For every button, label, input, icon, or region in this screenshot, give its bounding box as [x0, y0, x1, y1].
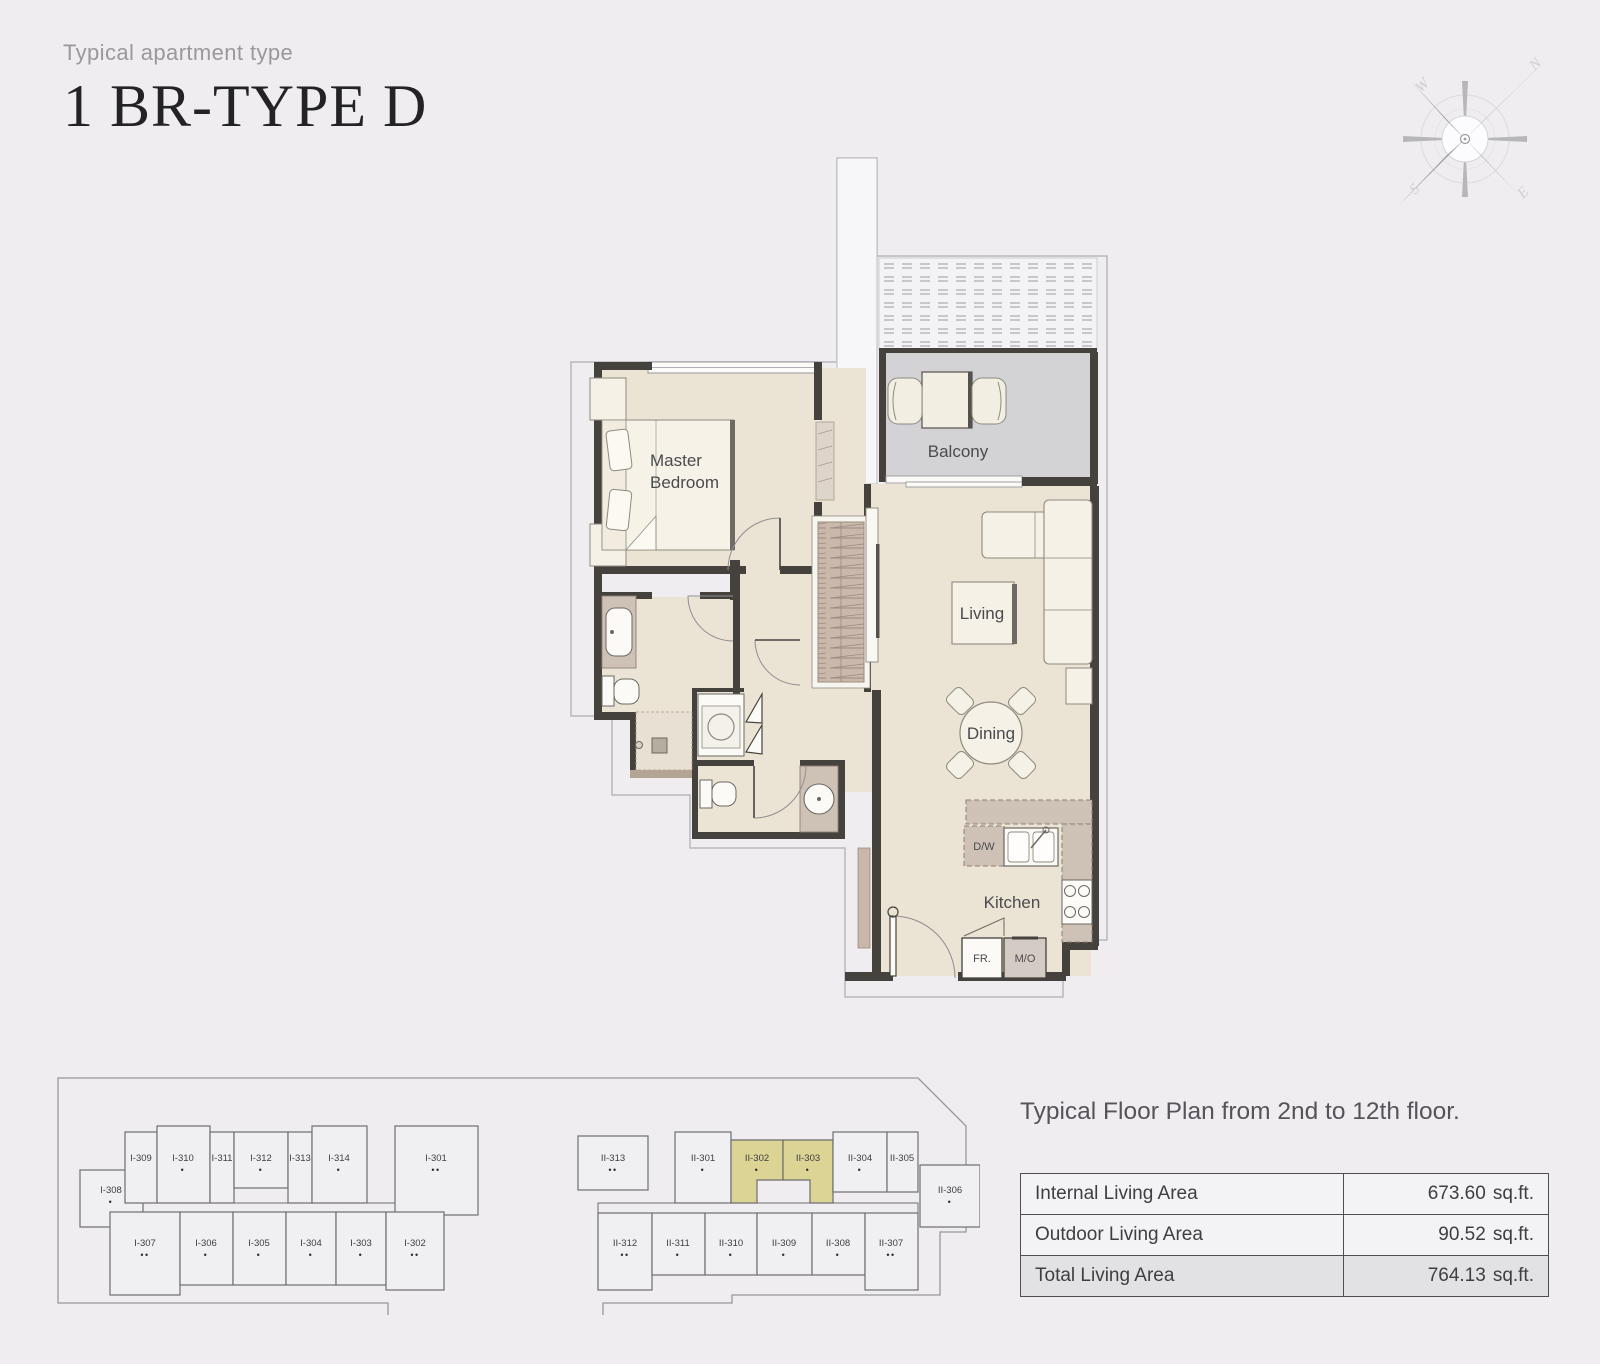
kitchen-label: Kitchen	[984, 893, 1041, 912]
compass-s-label: S	[1407, 181, 1424, 198]
svg-text:I-311: I-311	[212, 1153, 233, 1164]
site-key-plan: I-308• I-309 I-310• I-311 I-312• I-313 I…	[40, 1065, 980, 1315]
svg-text:I-302: I-302	[404, 1238, 426, 1249]
svg-text:I-307: I-307	[134, 1238, 156, 1249]
svg-text:II-311: II-311	[666, 1238, 690, 1249]
building1-units	[80, 1126, 478, 1295]
svg-text:•: •	[701, 1165, 706, 1175]
compass-n-label: N	[1526, 55, 1546, 75]
svg-text:II-306: II-306	[938, 1185, 962, 1196]
value-number: 673.60	[1428, 1183, 1486, 1205]
value-unit: sq.ft.	[1493, 1224, 1534, 1246]
svg-text:•: •	[782, 1250, 787, 1260]
value-number: 764.13	[1428, 1265, 1486, 1287]
floor-range-caption: Typical Floor Plan from 2nd to 12th floo…	[1020, 1098, 1560, 1126]
balcony-area: Balcony	[879, 348, 1098, 484]
row-value: 673.60 sq.ft.	[1344, 1174, 1548, 1214]
dining-label: Dining	[967, 724, 1015, 743]
svg-text:•: •	[676, 1250, 681, 1260]
svg-text:II-307: II-307	[879, 1238, 903, 1249]
svg-text:•: •	[181, 1165, 186, 1175]
compass-e-label: E	[1514, 184, 1533, 203]
svg-text:I-306: I-306	[195, 1238, 217, 1249]
pergola-hatch	[879, 258, 1097, 350]
table-row: Total Living Area 764.13 sq.ft.	[1021, 1256, 1548, 1296]
master-bedroom-label-2: Bedroom	[650, 473, 719, 492]
svg-text:••: ••	[886, 1250, 895, 1260]
svg-text:•: •	[858, 1165, 863, 1175]
living-label: Living	[960, 604, 1004, 623]
svg-text:••: ••	[608, 1165, 617, 1175]
svg-text:•: •	[309, 1250, 314, 1260]
svg-text:I-304: I-304	[300, 1238, 322, 1249]
svg-text:•: •	[359, 1250, 364, 1260]
svg-text:II-302: II-302	[745, 1153, 769, 1164]
building2-units	[578, 1132, 980, 1290]
svg-text:•: •	[337, 1165, 342, 1175]
compass-w-label: W	[1413, 75, 1434, 96]
value-unit: sq.ft.	[1493, 1265, 1534, 1287]
dishwasher-label: D/W	[973, 841, 995, 853]
value-unit: sq.ft.	[1493, 1183, 1534, 1205]
row-value: 90.52 sq.ft.	[1344, 1215, 1548, 1255]
svg-text:II-303: II-303	[796, 1153, 820, 1164]
row-label: Outdoor Living Area	[1021, 1215, 1344, 1255]
svg-text:•: •	[259, 1165, 264, 1175]
svg-text:••: ••	[410, 1250, 419, 1260]
balcony-table-set	[888, 372, 1006, 428]
tv-icon	[876, 544, 880, 638]
svg-text:I-309: I-309	[130, 1153, 152, 1164]
svg-text:•: •	[729, 1250, 734, 1260]
fridge-label: FR.	[973, 953, 991, 965]
svg-text:•: •	[836, 1250, 841, 1260]
svg-text:II-305: II-305	[890, 1153, 914, 1164]
row-value: 764.13 sq.ft.	[1344, 1256, 1548, 1296]
svg-text:I-310: I-310	[172, 1153, 194, 1164]
svg-text:II-301: II-301	[691, 1153, 715, 1164]
floor-plan: Balcony	[540, 150, 1120, 1010]
header-subtitle: Typical apartment type	[63, 40, 427, 66]
svg-text:I-312: I-312	[250, 1153, 272, 1164]
svg-text:••: ••	[620, 1250, 629, 1260]
svg-text:II-304: II-304	[848, 1153, 872, 1164]
microwave-label: M/O	[1015, 953, 1036, 965]
svg-text:I-305: I-305	[248, 1238, 270, 1249]
svg-text:I-301: I-301	[425, 1153, 447, 1164]
svg-text:••: ••	[431, 1165, 440, 1175]
svg-text:II-309: II-309	[772, 1238, 796, 1249]
master-bedroom-label-1: Master	[650, 451, 702, 470]
svg-text:•: •	[109, 1197, 114, 1207]
svg-text:II-312: II-312	[613, 1238, 637, 1249]
svg-text:II-308: II-308	[826, 1238, 850, 1249]
table-row: Internal Living Area 673.60 sq.ft.	[1021, 1174, 1548, 1215]
svg-text:II-310: II-310	[719, 1238, 743, 1249]
svg-text:•: •	[755, 1165, 760, 1175]
value-number: 90.52	[1438, 1224, 1486, 1246]
wardrobe	[812, 516, 870, 688]
row-label: Internal Living Area	[1021, 1174, 1344, 1214]
balcony-sliding-door	[886, 476, 1022, 487]
svg-text:I-314: I-314	[328, 1153, 350, 1164]
svg-text:•: •	[257, 1250, 262, 1260]
page-title: 1 BR-TYPE D	[63, 72, 427, 141]
svg-text:I-313: I-313	[289, 1153, 311, 1164]
svg-text:•: •	[806, 1165, 811, 1175]
row-label: Total Living Area	[1021, 1256, 1344, 1296]
duct-niche	[816, 422, 834, 500]
svg-text:•: •	[204, 1250, 209, 1260]
header: Typical apartment type 1 BR-TYPE D	[63, 40, 427, 141]
page: Typical apartment type 1 BR-TYPE D W N S…	[0, 0, 1600, 1364]
svg-text:II-313: II-313	[601, 1153, 625, 1164]
bedroom-window	[648, 362, 818, 373]
area-table: Internal Living Area 673.60 sq.ft. Outdo…	[1020, 1173, 1549, 1297]
svg-text:•: •	[948, 1197, 953, 1207]
svg-text:I-308: I-308	[100, 1185, 122, 1196]
balcony-label: Balcony	[928, 442, 989, 461]
svg-text:••: ••	[140, 1250, 149, 1260]
svg-text:I-303: I-303	[350, 1238, 372, 1249]
table-row: Outdoor Living Area 90.52 sq.ft.	[1021, 1215, 1548, 1256]
compass-rose-icon: W N S E	[1385, 55, 1555, 205]
